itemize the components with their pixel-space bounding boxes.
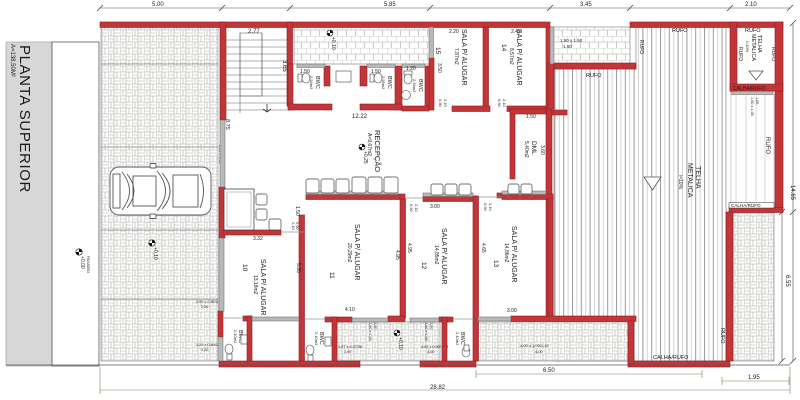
svg-text:1,00: 1,00: [429, 322, 433, 329]
svg-text:1.50: 1.50: [526, 114, 536, 120]
svg-text:6.50: 6.50: [543, 368, 555, 374]
svg-text:SALA P/ ALUGAR: SALA P/ ALUGAR: [510, 226, 517, 282]
svg-text:2,10: 2,10: [414, 204, 419, 213]
svg-text:2.20: 2.20: [449, 29, 459, 35]
svg-text:2.10: 2.10: [745, 2, 757, 8]
svg-text:+0,00: +0,00: [79, 256, 85, 269]
svg-text:2,10: 2,10: [488, 203, 493, 212]
svg-text:+0,10: +0,10: [330, 37, 336, 50]
svg-text:5.35: 5.35: [295, 263, 301, 273]
svg-text:+0,10: +0,10: [152, 247, 158, 260]
svg-text:1,20: 1,20: [201, 348, 208, 352]
svg-text:10: 10: [241, 264, 248, 272]
svg-text:11: 11: [328, 272, 335, 279]
svg-text:15: 15: [434, 47, 441, 55]
svg-text:2,10: 2,10: [291, 222, 296, 231]
svg-text:0,90: 0,90: [409, 204, 414, 213]
svg-text:3.32: 3.32: [253, 236, 263, 242]
svg-text:SALA P/ ALUGAR: SALA P/ ALUGAR: [353, 224, 360, 280]
svg-text:4.65: 4.65: [480, 243, 486, 253]
svg-text:2,64m2: 2,64m2: [412, 79, 417, 93]
svg-text:DML: DML: [530, 141, 537, 155]
svg-text:6.55: 6.55: [784, 275, 790, 287]
svg-text:RECEPÇÃO: RECEPÇÃO: [373, 130, 382, 172]
svg-text:4,00 x 1,00/1,10: 4,00 x 1,00/1,10: [520, 343, 549, 348]
svg-text:SALA P/ ALUGAR: SALA P/ ALUGAR: [515, 29, 522, 85]
svg-text:0,90: 0,90: [483, 203, 488, 212]
svg-text:RUFO: RUFO: [737, 47, 743, 61]
svg-text:2,00: 2,00: [201, 305, 208, 309]
svg-text:1.50: 1.50: [294, 206, 300, 216]
svg-text:5,40m2: 5,40m2: [523, 141, 529, 158]
svg-text:3.50: 3.50: [436, 63, 442, 73]
svg-text:3.00: 3.00: [430, 204, 440, 210]
svg-text:RUFO: RUFO: [672, 28, 688, 34]
svg-text:+0,10: +0,10: [397, 337, 403, 350]
svg-text:RUFO: RUFO: [638, 40, 644, 54]
svg-text:14.65: 14.65: [789, 185, 795, 201]
svg-text:1.50 x 1.50: 1.50 x 1.50: [560, 38, 583, 43]
svg-text:1,50 x 1,05: 1,50 x 1,05: [750, 97, 754, 116]
svg-text:8,57m2: 8,57m2: [508, 48, 514, 65]
svg-text:3.45: 3.45: [580, 2, 592, 8]
svg-text:1,00: 1,00: [344, 350, 351, 354]
svg-text:5.85: 5.85: [384, 2, 396, 8]
svg-text:RUFO: RUFO: [586, 73, 602, 79]
svg-text:0,90: 0,90: [438, 99, 443, 108]
svg-text:28.82: 28.82: [430, 385, 446, 391]
svg-text:CALHA/RUFO: CALHA/RUFO: [731, 203, 761, 208]
svg-text:1,00: 1,00: [373, 322, 377, 329]
svg-text:RUFO: RUFO: [764, 137, 770, 154]
svg-text:4,00: 4,00: [427, 350, 434, 354]
svg-text:14: 14: [500, 44, 507, 52]
svg-text:12.22: 12.22: [352, 114, 368, 120]
svg-text:14,86m2: 14,86m2: [503, 243, 509, 263]
svg-text:i=10%: i=10%: [745, 41, 750, 53]
svg-text:12: 12: [420, 262, 427, 270]
svg-text:4.10: 4.10: [345, 307, 355, 313]
svg-text:2,10: 2,10: [502, 99, 507, 108]
svg-text:4.95: 4.95: [406, 243, 412, 253]
svg-text:4.95: 4.95: [394, 250, 400, 260]
svg-text:1.50: 1.50: [563, 44, 572, 49]
svg-text:13: 13: [492, 260, 499, 268]
svg-text:1,05: 1,05: [755, 97, 759, 104]
svg-text:3.60: 3.60: [539, 145, 545, 155]
svg-text:20,29m2: 20,29m2: [346, 243, 352, 263]
svg-text:CALHA/RUFO: CALHA/RUFO: [653, 355, 689, 361]
svg-text:PLANTA SUPERIOR: PLANTA SUPERIOR: [16, 45, 33, 193]
svg-text:PASSEIO: PASSEIO: [86, 256, 91, 273]
svg-text:2,10m2: 2,10m2: [233, 330, 238, 344]
svg-text:2.77: 2.77: [248, 29, 260, 35]
svg-text:i=10%: i=10%: [677, 175, 683, 190]
svg-text:SALA P/ ALUGAR: SALA P/ ALUGAR: [440, 228, 447, 284]
svg-text:SALA P/ ALUGAR: SALA P/ ALUGAR: [259, 259, 266, 315]
svg-text:1.50: 1.50: [300, 69, 310, 75]
svg-text:0,90: 0,90: [497, 99, 502, 108]
svg-text:4,00: 4,00: [535, 349, 544, 354]
svg-text:1.95: 1.95: [748, 375, 760, 381]
svg-text:1.20: 1.20: [406, 66, 416, 72]
svg-text:SALA P/ ALUGAR: SALA P/ ALUGAR: [460, 29, 467, 85]
svg-text:A=138,50M²: A=138,50M²: [9, 44, 15, 77]
svg-text:2,10: 2,10: [443, 99, 448, 108]
svg-text:METALICA: METALICA: [686, 163, 693, 198]
svg-text:3.65: 3.65: [281, 60, 287, 72]
svg-text:7,87m2: 7,87m2: [453, 48, 459, 65]
svg-text:2,10m2: 2,10m2: [314, 332, 319, 346]
svg-text:2.45: 2.45: [511, 29, 521, 35]
svg-text:5.00: 5.00: [152, 2, 164, 8]
svg-text:2,10m2: 2,10m2: [455, 332, 460, 346]
svg-text:TELHA: TELHA: [694, 166, 701, 189]
svg-text:3.00: 3.00: [507, 308, 517, 314]
svg-text:RUFO: RUFO: [719, 328, 725, 344]
svg-text:1,60 x 1,00: 1,60 x 1,00: [424, 322, 428, 341]
svg-text:13,18m2: 13,18m2: [252, 275, 258, 295]
svg-text:1.50: 1.50: [371, 69, 381, 75]
svg-text:+0,25: +0,25: [362, 151, 368, 164]
svg-text:1,60 x 1,00: 1,60 x 1,00: [368, 322, 372, 341]
svg-text:8.75: 8.75: [224, 119, 230, 130]
svg-text:14,85m2: 14,85m2: [433, 245, 439, 265]
svg-text:1,07 x 0,07/06: 1,07 x 0,07/06: [338, 345, 362, 349]
svg-text:CALHA/RUFO: CALHA/RUFO: [733, 86, 765, 92]
